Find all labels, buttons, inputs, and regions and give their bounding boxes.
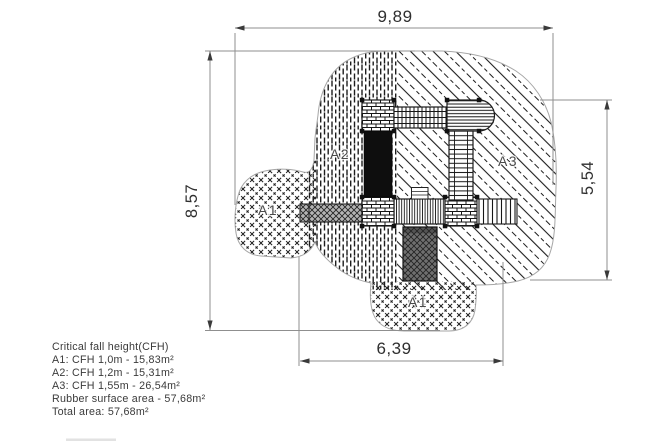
platform-lower-left [362,197,394,226]
platform-lower-right [445,197,477,226]
dimension-right-value: 5,54 [579,161,597,195]
dimension-top-value: 9,89 [377,7,412,26]
climbing-ladder [449,131,473,200]
dimension-left-value: 8,57 [183,184,201,218]
tower-right [447,100,495,131]
climbing-wall [403,227,437,281]
zone-label-a1-left: A1 [258,202,278,218]
hatch-regions [230,45,559,333]
legend-item-rubber-area: Rubber surface area - 57,68m² [52,393,312,406]
legend-item-total-area: Total area: 57,68m² [52,406,312,419]
zone-label-a1-bottom: A1 [408,294,428,310]
bench-slats [477,199,517,224]
slide [300,204,362,222]
legend-title: Critical fall height(CFH) [52,341,312,354]
steps [412,188,429,200]
legend-item-a3: A3: CFH 1,55m - 26,54m² [52,380,312,393]
cfh-legend: Critical fall height(CFH) A1: CFH 1,0m -… [52,341,312,418]
slide-tube [364,131,392,197]
site-plan-screenshot: 9,89 8,57 5,54 6,39 [0,0,650,442]
legend-item-a2: A2: CFH 1,2m - 15,31m² [52,367,312,380]
rubber-surface-area [230,45,559,333]
dimension-bottom-value: 6,39 [376,339,411,358]
cropped-edge-artifact [66,439,116,442]
walkway [394,199,445,224]
zone-label-a3: A3 [498,153,518,169]
tower-left [362,100,394,131]
bridge [394,107,448,128]
zone-label-a2: A2 [330,146,350,162]
legend-item-a1: A1: CFH 1,0m - 15,83m² [52,354,312,367]
